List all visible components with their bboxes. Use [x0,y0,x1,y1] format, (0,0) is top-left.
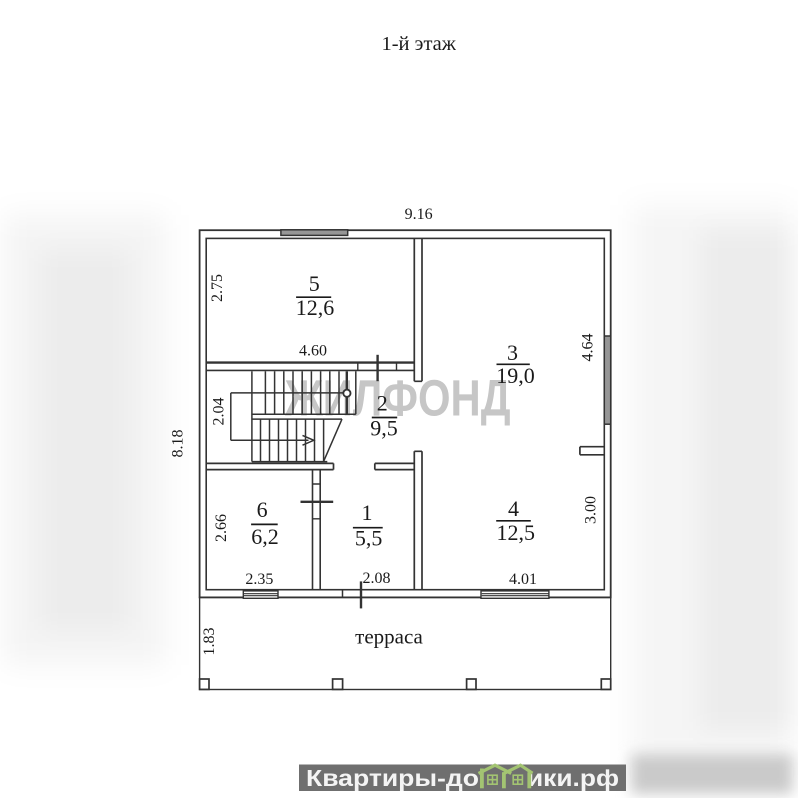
svg-text:терраса: терраса [355,625,423,649]
svg-text:5,5: 5,5 [355,526,383,551]
svg-text:2.04: 2.04 [210,398,227,426]
svg-text:6,2: 6,2 [251,524,279,549]
svg-text:2.35: 2.35 [245,571,273,588]
svg-text:ики.рф: ики.рф [527,765,619,791]
svg-text:2: 2 [377,391,388,416]
svg-text:Квартиры-до: Квартиры-до [306,765,479,791]
svg-text:4.64: 4.64 [579,334,596,362]
svg-text:2.66: 2.66 [213,514,230,542]
svg-text:12,6: 12,6 [296,295,335,320]
svg-text:2.08: 2.08 [363,570,391,587]
svg-text:19,0: 19,0 [496,363,535,388]
svg-text:4: 4 [508,496,519,521]
svg-text:3.00: 3.00 [582,496,599,524]
svg-text:5: 5 [309,271,320,296]
svg-text:8.18: 8.18 [169,430,186,458]
svg-text:1.83: 1.83 [201,628,218,656]
svg-text:4.60: 4.60 [299,342,327,359]
svg-text:2.75: 2.75 [209,274,226,302]
svg-text:6: 6 [257,497,268,522]
svg-text:3: 3 [507,340,518,365]
svg-text:1: 1 [362,500,373,525]
svg-text:1-й этаж: 1-й этаж [381,33,456,55]
svg-text:9,5: 9,5 [370,415,398,440]
svg-text:9.16: 9.16 [405,206,433,223]
svg-text:4.01: 4.01 [509,571,537,588]
svg-text:12,5: 12,5 [496,520,535,545]
